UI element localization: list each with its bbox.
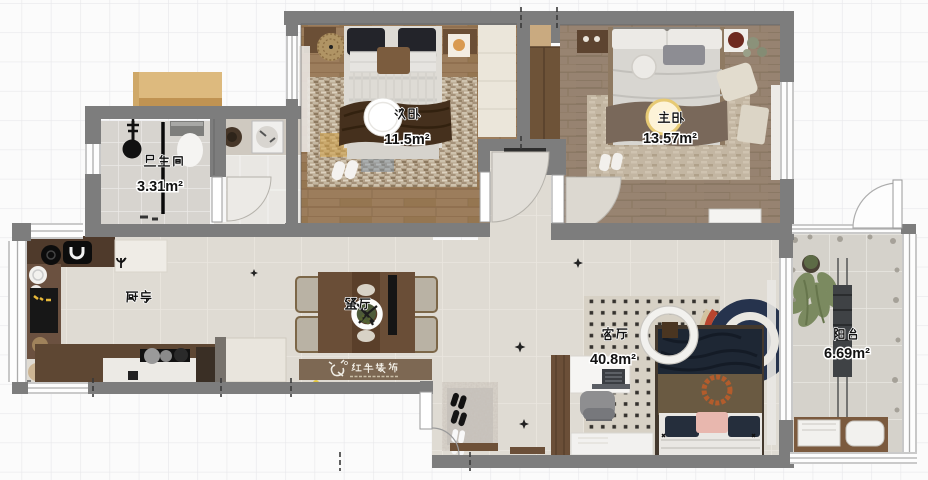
svg-text:11.5m²: 11.5m² (384, 132, 429, 148)
svg-text:40.8m²: 40.8m² (590, 352, 636, 368)
svg-text:6.69m²: 6.69m² (824, 346, 870, 362)
svg-text:3.31m²: 3.31m² (137, 179, 183, 195)
svg-text:13.57m²: 13.57m² (643, 131, 697, 147)
